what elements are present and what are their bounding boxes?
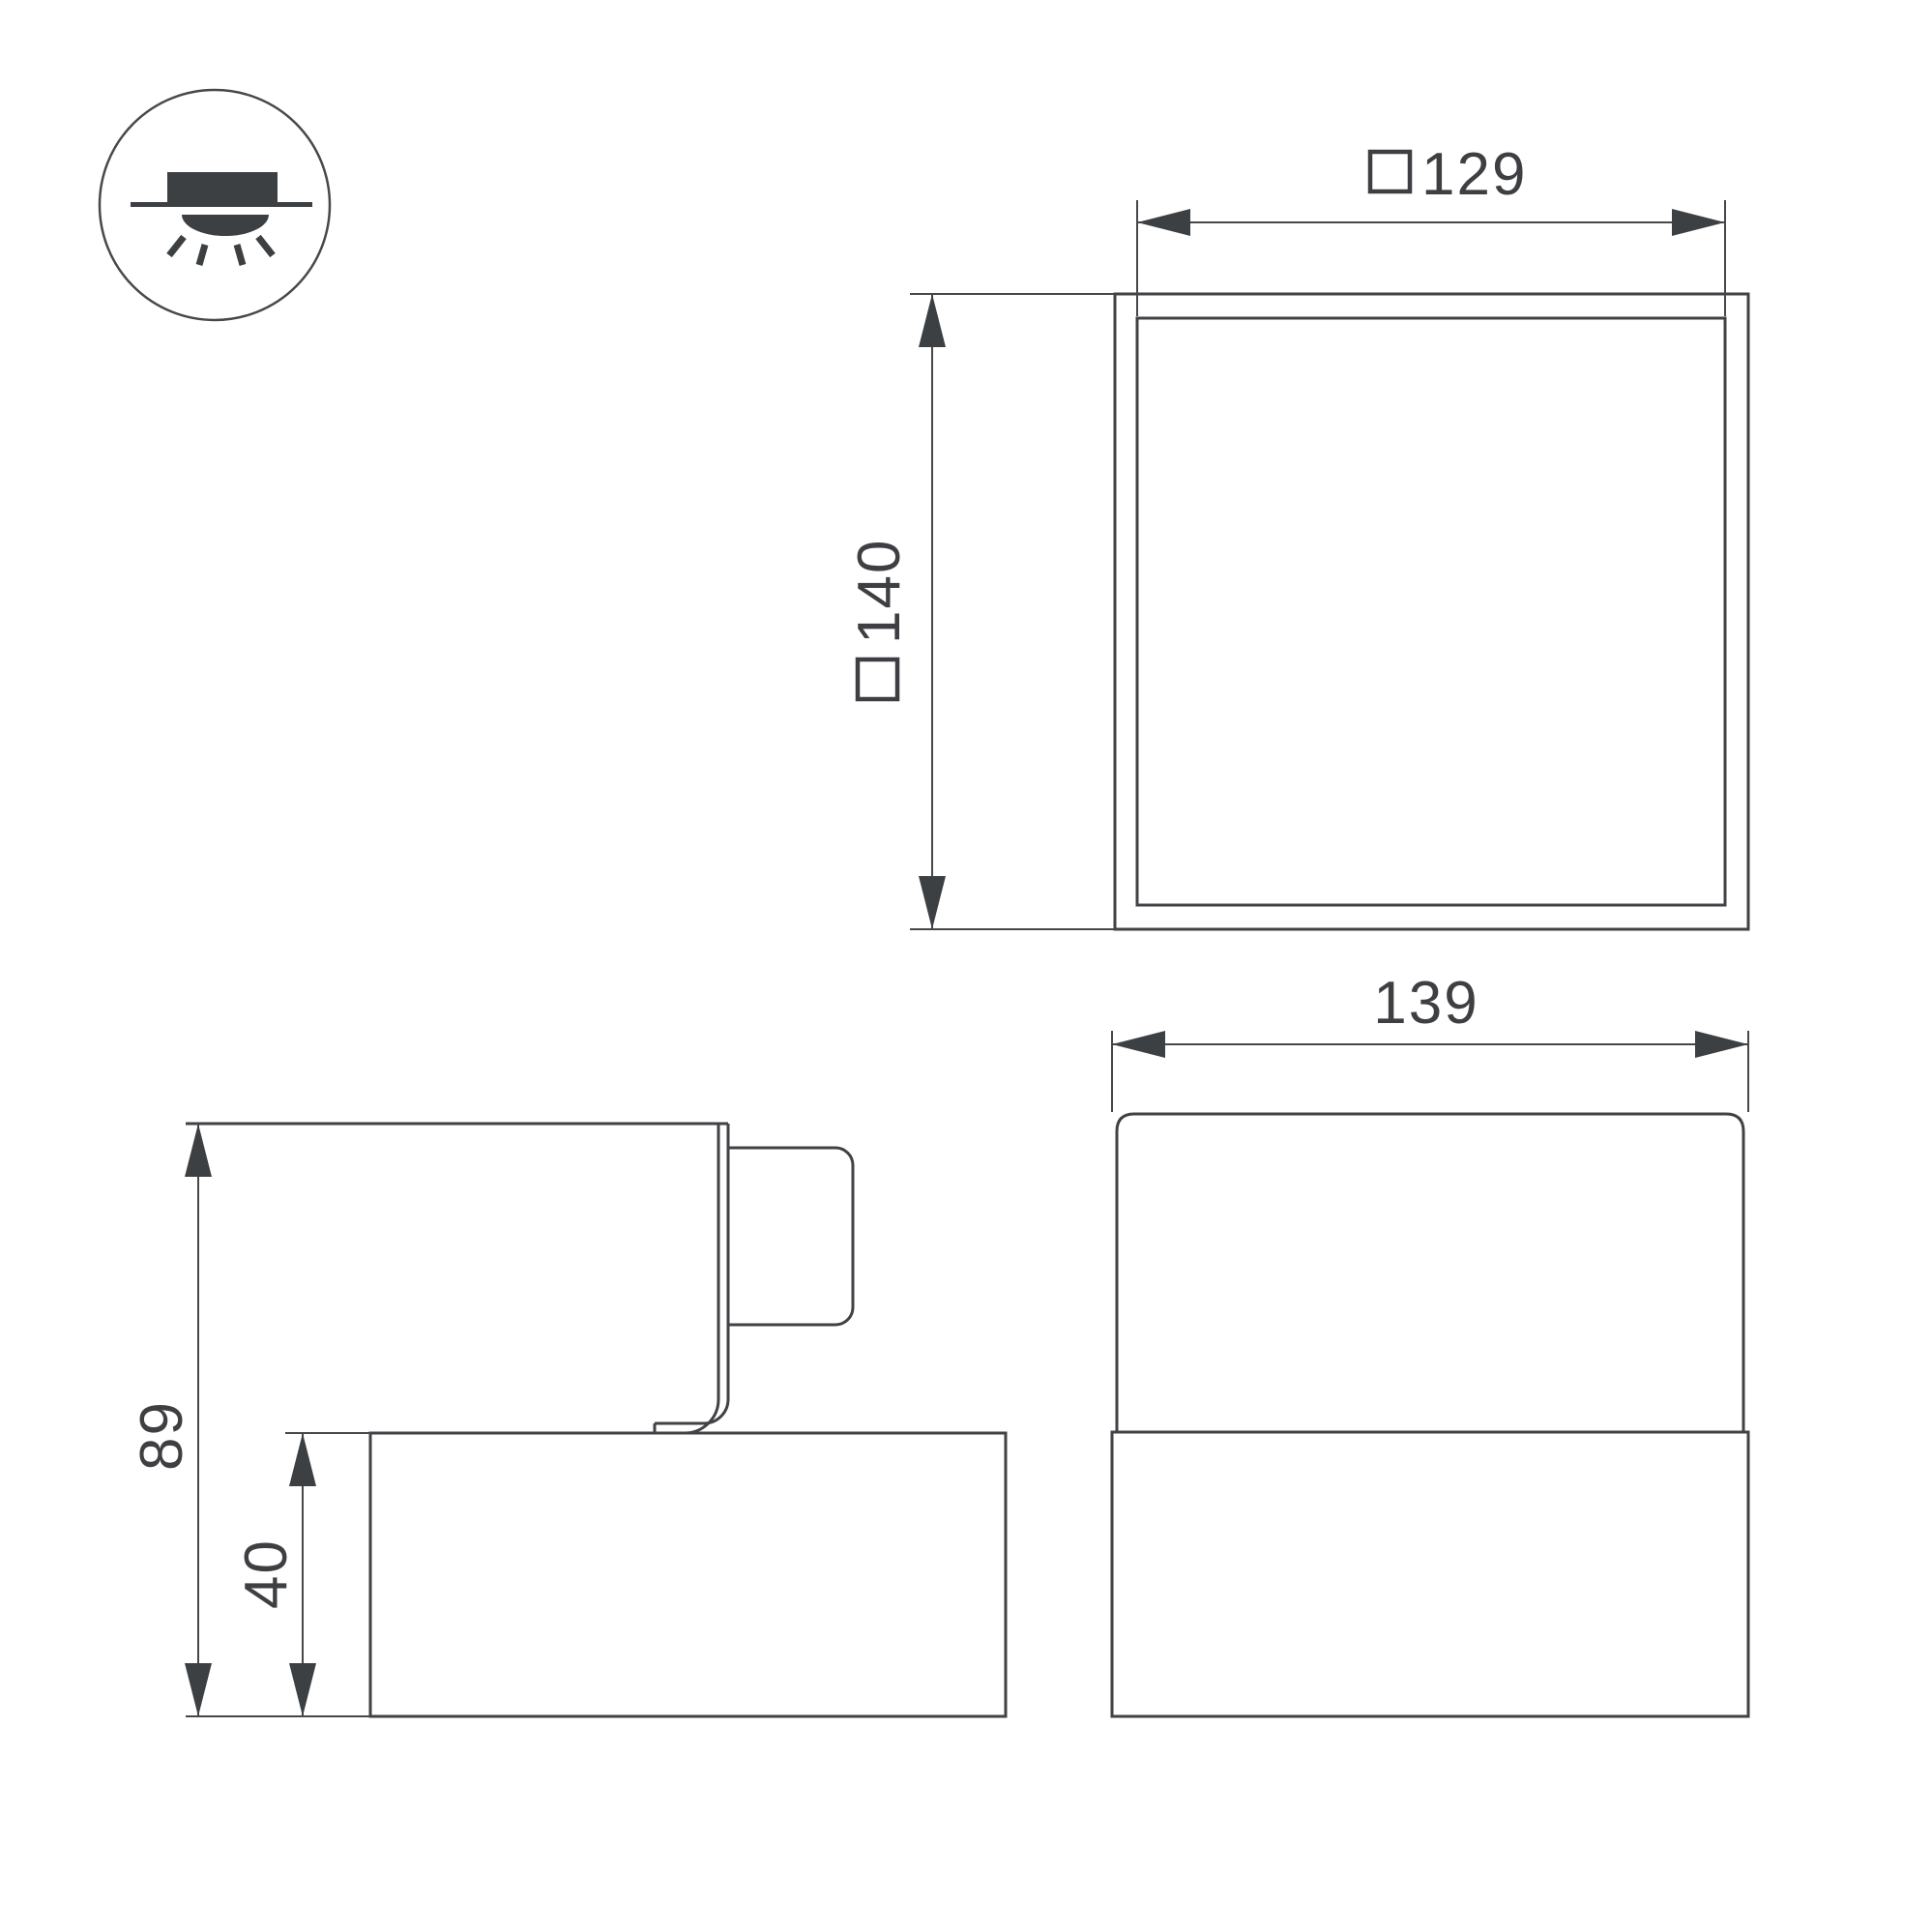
dimension-129-label: 129 — [1370, 141, 1527, 208]
arrow-up-icon — [185, 1124, 212, 1177]
side-view-driver-box — [728, 1148, 853, 1325]
top-view-outer-square — [1115, 294, 1748, 929]
front-view-base-body — [1112, 1432, 1748, 1716]
dimension-value: 89 — [129, 1400, 195, 1471]
arrow-down-icon — [289, 1663, 316, 1716]
surface-mount-icon — [100, 90, 330, 320]
side-view: 89 40 — [129, 1124, 1006, 1716]
square-symbol — [1370, 152, 1410, 191]
dimension-40: 40 — [233, 1433, 370, 1716]
side-view-base-body — [370, 1433, 1006, 1716]
top-view-inner-square — [1137, 318, 1725, 905]
arrow-left-icon — [1112, 1031, 1165, 1058]
dimension-139: 139 — [1112, 970, 1748, 1112]
front-view-lamp-head — [1117, 1114, 1743, 1432]
dimension-89: 89 — [129, 1124, 370, 1716]
arrow-up-icon — [919, 294, 946, 347]
arrow-down-icon — [185, 1663, 212, 1716]
dimension-40-label: 40 — [233, 1538, 300, 1609]
top-view: 129 140 — [846, 141, 1748, 929]
icon-fixture-body — [167, 172, 278, 205]
front-view: 139 — [1112, 970, 1748, 1716]
arrow-up-icon — [289, 1433, 316, 1486]
bracket-outer-edge — [655, 1124, 718, 1433]
dimension-value: 129 — [1421, 141, 1527, 208]
arrow-right-icon — [1672, 209, 1725, 236]
side-view-bracket — [655, 1124, 728, 1433]
arrow-right-icon — [1695, 1031, 1748, 1058]
square-symbol — [858, 659, 897, 699]
icon-ceiling-line — [131, 202, 312, 207]
drawing-page: 129 140 — [0, 0, 1932, 1932]
dimension-89-label: 89 — [129, 1400, 195, 1471]
dimension-140-label: 140 — [846, 539, 913, 699]
dimension-value: 140 — [846, 539, 913, 644]
dimension-value: 40 — [233, 1538, 300, 1609]
dimension-129: 129 — [1137, 141, 1725, 316]
dimension-139-label: 139 — [1373, 970, 1478, 1037]
arrow-left-icon — [1137, 209, 1190, 236]
arrow-down-icon — [919, 876, 946, 929]
technical-drawing: 129 140 — [0, 0, 1932, 1932]
dimension-140: 140 — [846, 294, 1115, 929]
